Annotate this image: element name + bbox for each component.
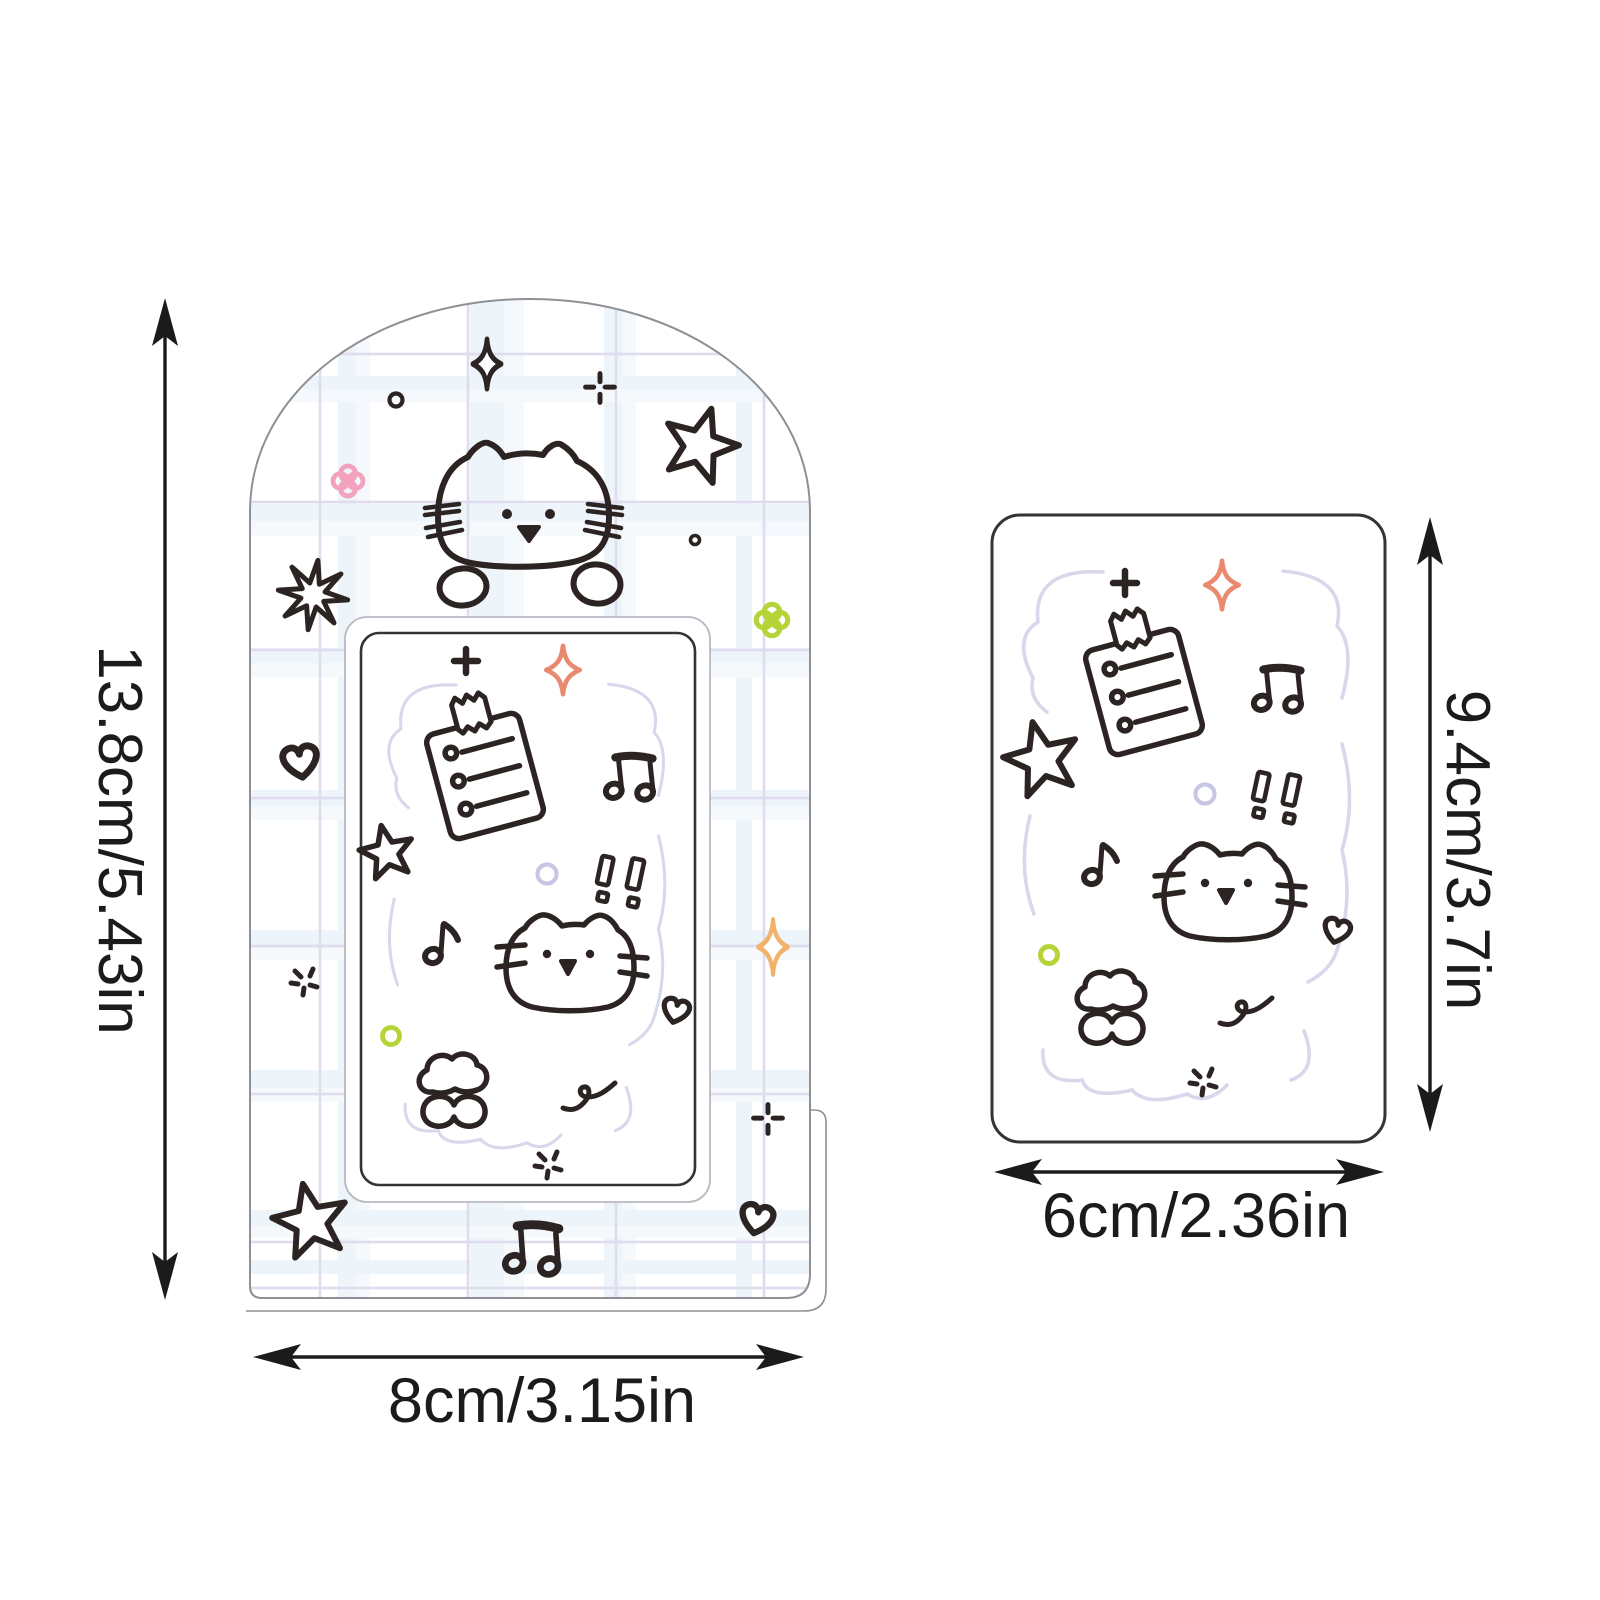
svg-text:13.8cm/5.43in: 13.8cm/5.43in [85,645,154,1034]
svg-text:6cm/2.36in: 6cm/2.36in [1042,1181,1350,1251]
svg-text:9.4cm/3.7in: 9.4cm/3.7in [1433,690,1502,1011]
svg-text:8cm/3.15in: 8cm/3.15in [388,1366,696,1436]
